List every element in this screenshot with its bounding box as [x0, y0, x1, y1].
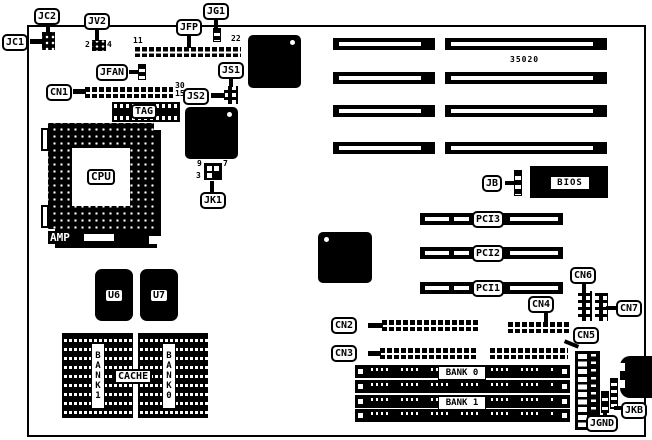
cn2-callout: CN2 [331, 317, 357, 334]
amp-regulator-shadow [55, 244, 157, 248]
amp-white-block [84, 234, 114, 241]
jfp-callout: JFP [176, 19, 202, 36]
isa-part-number: 35020 [510, 56, 539, 64]
jg1-callout: JG1 [203, 3, 229, 20]
jv2-pin4-number: 4 [107, 41, 112, 49]
jc1-pointer [30, 39, 43, 44]
jgnd-callout: JGND [586, 415, 618, 432]
cn5-callout: CN5 [573, 327, 599, 344]
jkb-callout: JKB [621, 402, 647, 419]
jfan-callout: JFAN [96, 64, 128, 81]
jv2-jumper [92, 40, 106, 51]
jb-pointer [505, 181, 514, 185]
jfp-header [135, 47, 241, 57]
jc-connector [42, 32, 55, 50]
tag-label: TAG [131, 104, 157, 119]
js2-pointer [211, 93, 225, 98]
cn3-callout: CN3 [331, 345, 357, 362]
pci3-label: PCI3 [472, 211, 504, 228]
pin1-indicator [227, 112, 232, 117]
isa-slot-4-long [445, 142, 607, 154]
jfp-pin11-number: 11 [133, 37, 143, 45]
pci1-label: PCI1 [472, 280, 504, 297]
amp-regulator-bar: AMP [48, 231, 149, 244]
simm-bank1-label: BANK 1 [438, 396, 486, 410]
bios-chip: BIOS [530, 166, 608, 198]
jv2-pin2-number: 2 [85, 41, 90, 49]
pin1-indicator [324, 237, 329, 242]
u6-label: U6 [104, 288, 124, 303]
isa-slot-1-short [333, 38, 435, 50]
jfan-connector [138, 64, 146, 80]
jk1-pin9-number: 9 [197, 160, 202, 168]
amp-label: AMP [50, 231, 70, 244]
isa-slot-4-short [333, 142, 435, 154]
jb-jumper [514, 170, 522, 196]
isa-slot-1-long [445, 38, 607, 50]
isa-slot-3-short [333, 105, 435, 117]
qfp-chip-left [185, 107, 238, 159]
jk1-callout: JK1 [200, 192, 226, 209]
jfan-pointer [129, 70, 138, 74]
cn2-header [382, 320, 478, 331]
jc2-callout: JC2 [34, 8, 60, 25]
cn1-callout: CN1 [46, 84, 72, 101]
socket-lever-bottom [41, 205, 49, 228]
keyboard-din-connector [620, 356, 652, 398]
pin1-indicator [290, 40, 295, 45]
cn1-header [85, 87, 173, 98]
socket-lever-top [41, 128, 49, 151]
cn4-callout: CN4 [528, 296, 554, 313]
isa-slot-3-long [445, 105, 607, 117]
cn3-pointer [368, 351, 381, 356]
cn6-callout: CN6 [570, 267, 596, 284]
jb-callout: JB [482, 175, 502, 192]
cache-label: CACHE [114, 369, 152, 384]
u7-label: U7 [149, 288, 169, 303]
simm-slot-2 [355, 380, 570, 393]
jkb-header [610, 378, 618, 409]
js-connector [224, 86, 238, 104]
jk1-jumper-block [204, 163, 222, 180]
js2-callout: JS2 [183, 88, 209, 105]
isa-slot-2-short [333, 72, 435, 84]
cn6-header [578, 291, 592, 321]
jc1-callout: JC1 [2, 34, 28, 51]
jk1-pin7-number: 7 [223, 160, 228, 168]
bios-window: BIOS [551, 177, 589, 189]
cn2-pointer [368, 323, 383, 328]
cn1-pointer [73, 89, 86, 94]
jfp-pin22-number: 22 [231, 35, 241, 43]
cn5-header [490, 348, 568, 359]
cpu-label: CPU [87, 169, 115, 185]
simm-slot-4 [355, 409, 570, 422]
qfp-chip-top [248, 35, 301, 88]
pci2-label: PCI2 [472, 245, 504, 262]
jg1-jumper [213, 28, 221, 42]
js1-callout: JS1 [218, 62, 244, 79]
cache-bank1-label: BANK1 [91, 343, 105, 409]
qfp-chip-middle [318, 232, 372, 283]
cn7-callout: CN7 [616, 300, 642, 317]
cn4-header [508, 322, 569, 333]
cn3-header [380, 348, 476, 359]
jk1-pin3-number: 3 [196, 172, 201, 180]
simm-bank0-label: BANK 0 [438, 366, 486, 380]
motherboard-diagram: JC2 JC1 JV2 2 4 JG1 JFP 11 22 JFAN CN1 3… [0, 0, 652, 440]
jv2-callout: JV2 [84, 13, 110, 30]
isa-slot-2-long [445, 72, 607, 84]
cache-bank0-label: BANK0 [162, 343, 176, 409]
